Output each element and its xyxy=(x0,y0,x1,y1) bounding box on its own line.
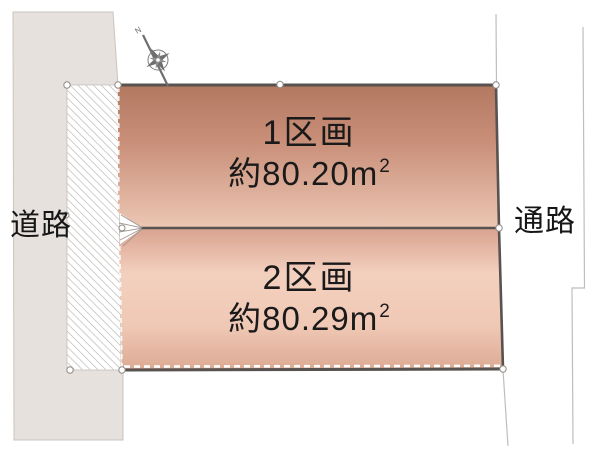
compass-icon: N xyxy=(133,25,176,86)
plot2-area-value: 約80.29 xyxy=(228,300,350,337)
plot1-name: 1区画 xyxy=(117,112,501,154)
hatch-area xyxy=(67,85,121,370)
plot2-name: 2区画 xyxy=(117,257,501,299)
plot2-area-exponent: 2 xyxy=(379,301,391,322)
plot2-area: 約80.29m2 xyxy=(117,299,501,345)
plot2-text-block: 2区画 約80.29m2 xyxy=(117,257,501,345)
compass-north-label: N xyxy=(133,25,143,36)
plot2-area-unit: m xyxy=(350,300,379,337)
plot1-area: 約80.20m2 xyxy=(117,154,501,200)
plot1-text-block: 1区画 約80.20m2 xyxy=(117,112,501,200)
plot1-area-value: 約80.20 xyxy=(228,155,350,192)
road-label-right: 通路 xyxy=(514,206,576,238)
plot1-area-exponent: 2 xyxy=(379,156,391,177)
plot1-area-unit: m xyxy=(350,155,379,192)
plot-map-drawing: N xyxy=(0,0,600,462)
road-label-left: 道路 xyxy=(10,210,72,242)
land-plot-map: N 道路 通路 1区画 約80.20m2 2区画 約80.29m2 xyxy=(0,0,600,462)
